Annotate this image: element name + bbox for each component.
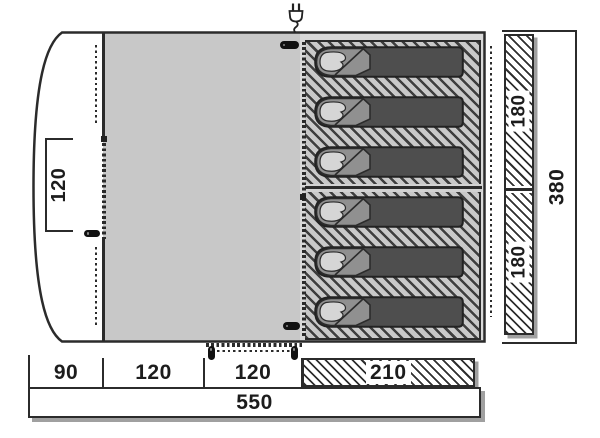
cabin-zipper-pull-top-icon <box>280 41 299 49</box>
sleeping-bag <box>314 96 464 128</box>
depth-section-label-top: 180 <box>509 90 530 131</box>
total-length-box: 550 <box>28 387 481 418</box>
length-segment-label-210: 210 <box>366 361 411 384</box>
length-segment-label-90: 90 <box>30 362 102 383</box>
depth-section-label-bottom: 180 <box>509 241 530 282</box>
sleeping-bag <box>314 196 464 228</box>
door-seam-dotted-upper <box>95 45 97 125</box>
total-depth-label: 380 <box>547 169 568 206</box>
total-depth-bracket-side <box>575 30 577 344</box>
front-door-zipper-pull-left-icon <box>208 346 215 360</box>
length-segment-bar-210: 210 <box>302 358 475 388</box>
rear-wall-dotted-line <box>490 46 492 317</box>
cabin-zipper-teeth <box>302 42 307 336</box>
length-segment-label-120b: 120 <box>205 362 301 383</box>
power-plug-icon <box>283 3 309 33</box>
sleeping-bag <box>314 246 464 278</box>
door-bracket-top <box>45 138 73 140</box>
door-seam-dotted-lower <box>95 247 97 327</box>
door-bracket-stem <box>45 138 47 232</box>
depth-bar-divider <box>506 186 532 193</box>
door-zipper-pull-icon <box>84 230 100 238</box>
door-zipper-teeth <box>102 138 107 239</box>
length-segment-label-120a: 120 <box>104 362 203 383</box>
total-depth-bracket-bottom <box>502 342 577 344</box>
porch-boundary-upper <box>102 33 105 139</box>
door-zipper-slider-icon <box>101 136 107 142</box>
total-length-label: 550 <box>236 392 273 413</box>
total-depth-bracket-top <box>502 30 577 32</box>
front-door-zipper-teeth <box>206 343 302 347</box>
tent-floorplan-diagram: 120 180 180 380 90 120 120 210 550 <box>0 0 600 438</box>
cabin-zipper-pull-bottom-icon <box>283 322 300 330</box>
door-width-label: 120 <box>49 168 69 203</box>
cabin-zipper-slider-icon <box>300 194 306 200</box>
front-door-dotted-line <box>217 350 291 352</box>
door-bracket-bottom <box>45 230 73 232</box>
depth-section-bar <box>504 34 534 335</box>
porch-boundary-lower <box>102 239 105 342</box>
front-door-zipper-pull-right-icon <box>291 346 298 360</box>
sleeping-cabin-divider <box>305 184 482 192</box>
sleeping-bag <box>314 296 464 328</box>
sleeping-bag <box>314 146 464 178</box>
sleeping-bag <box>314 46 464 78</box>
